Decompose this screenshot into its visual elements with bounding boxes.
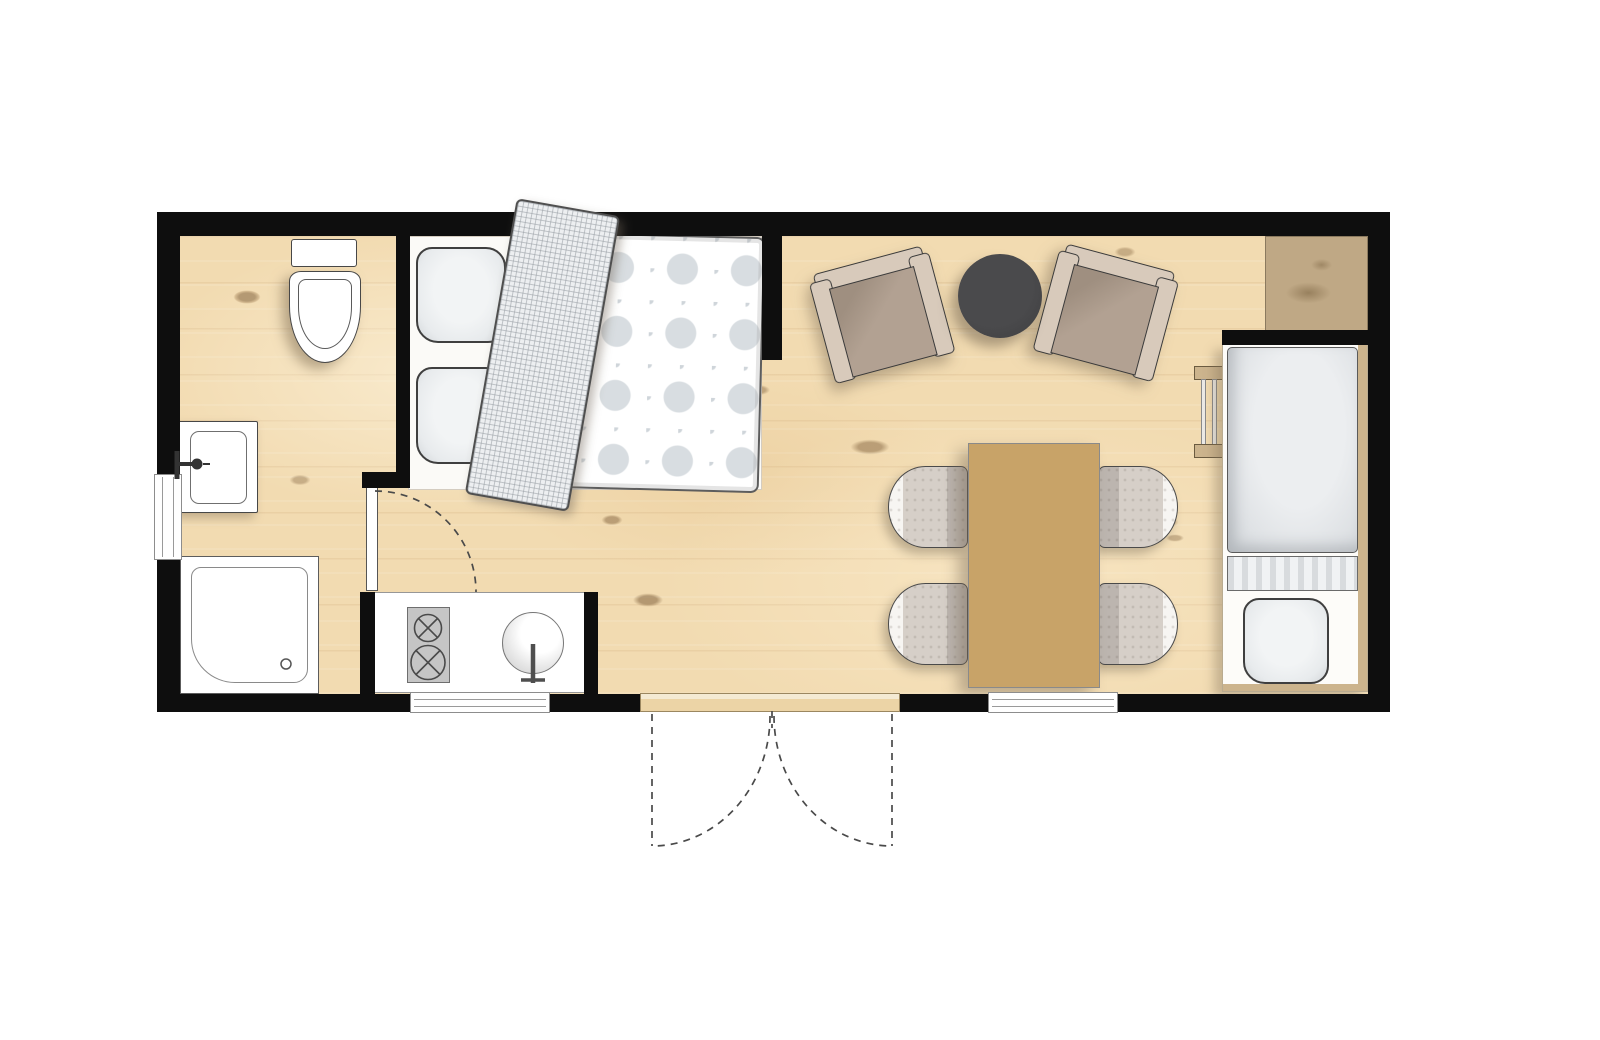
- stove: [407, 607, 450, 683]
- single-bed-trim-right: [1358, 345, 1367, 691]
- left-wall-window: [154, 474, 182, 560]
- window-mullion6: [992, 706, 1114, 707]
- kitchen-sink: [502, 612, 564, 674]
- washbasin: [178, 421, 258, 513]
- wall-kitchen-stub-left: [360, 592, 375, 694]
- entry-door-threshold: [640, 693, 900, 712]
- dining-window: [988, 692, 1118, 713]
- wall-bathroom-divider-stub: [362, 472, 410, 488]
- ladder-rail: [1201, 379, 1206, 445]
- ladder-rung-top: [1194, 366, 1224, 380]
- shower-tray: [180, 556, 319, 694]
- washbasin-bowl: [190, 431, 247, 504]
- double-bed-pillow-top: [416, 247, 506, 343]
- wall-bottom-bathroom: [157, 694, 410, 712]
- dining-table: [968, 443, 1100, 688]
- bathroom-door-leaf: [366, 487, 378, 591]
- window-mullion3: [414, 699, 546, 700]
- toilet-tank: [291, 239, 357, 267]
- wall-right: [1368, 212, 1390, 712]
- window-mullion: [162, 477, 163, 557]
- wall-bathroom-divider: [396, 236, 410, 474]
- dining-chair-1: [888, 466, 968, 548]
- window-mullion2: [173, 477, 174, 557]
- bed-ladder: [1194, 366, 1224, 458]
- floor-plan-canvas: [0, 0, 1600, 1040]
- toilet-bowl-inner: [298, 279, 352, 349]
- entry-double-door-swing: [652, 711, 892, 846]
- corner-cabinet: [1265, 236, 1368, 331]
- dining-chair-4: [1098, 583, 1178, 665]
- dining-chair-2: [888, 583, 968, 665]
- window-mullion4: [414, 706, 546, 707]
- wall-bed-divider-stub: [762, 236, 782, 360]
- single-bed-trim-bottom: [1223, 684, 1367, 691]
- single-bed-frame: [1222, 344, 1368, 692]
- wall-bottom-dining: [900, 694, 988, 712]
- single-bed-pillow: [1243, 598, 1329, 684]
- single-bed-duvet: [1227, 347, 1358, 553]
- shower-tray-inner: [191, 567, 308, 683]
- wall-bottom-mid: [550, 694, 640, 712]
- kitchen-window: [410, 692, 550, 713]
- ladder-rail2: [1212, 379, 1217, 445]
- wall-top: [157, 212, 1390, 236]
- ladder-rung-bottom: [1194, 444, 1224, 458]
- wall-kitchen-stub-right: [584, 592, 598, 694]
- wall-corner-stub: [1222, 330, 1368, 345]
- window-mullion5: [992, 699, 1114, 700]
- wall-bottom-right: [1118, 694, 1390, 712]
- round-side-table: [958, 254, 1042, 338]
- wall-left: [157, 212, 180, 712]
- dining-chair-3: [1098, 466, 1178, 548]
- single-bed-blanket-fold: [1227, 556, 1358, 591]
